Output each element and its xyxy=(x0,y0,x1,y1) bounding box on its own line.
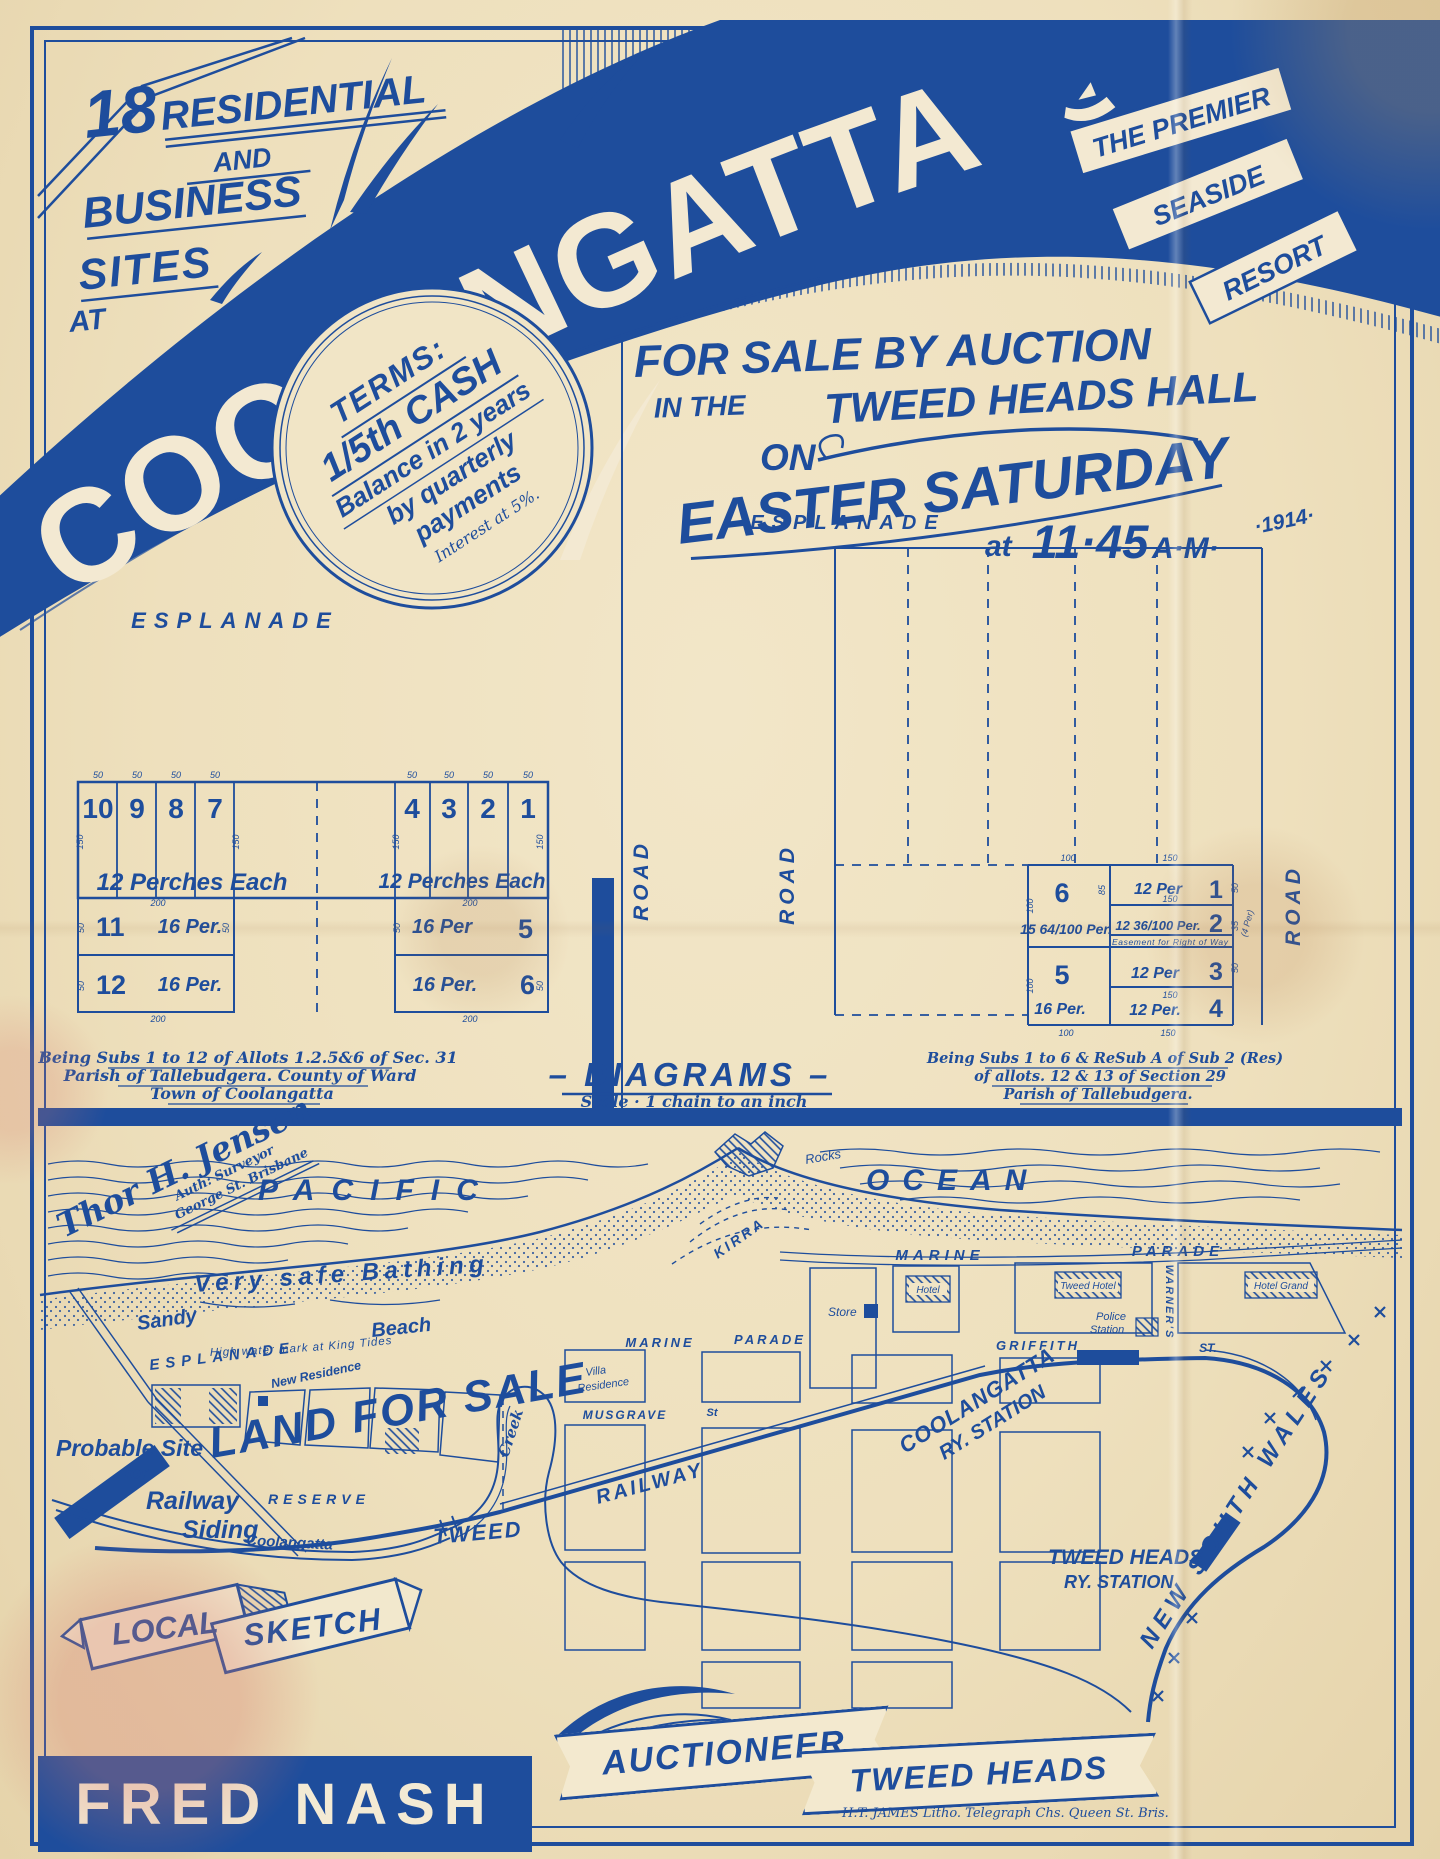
lot-number: 1 xyxy=(520,793,536,824)
marine-parade-label2: MARINE xyxy=(625,1335,694,1350)
lot-number: 7 xyxy=(207,793,223,824)
diagrams-scale: Scale · 1 chain to an inch xyxy=(581,1092,808,1111)
lot-number: 4 xyxy=(1209,995,1223,1023)
lot-number: 5 xyxy=(1054,960,1069,990)
police-station-building xyxy=(1136,1318,1158,1336)
dim-label: 100 xyxy=(1060,853,1075,863)
area-label: 16 Per. xyxy=(413,974,478,996)
griffith-st-suffix: ST. xyxy=(1199,1341,1217,1355)
tweed-hotel-label: Tweed Hotel xyxy=(1060,1281,1116,1292)
railway-label: RAILWAY xyxy=(594,1459,707,1509)
area-label: 16 Per. xyxy=(1034,1001,1086,1018)
dim-label: 50 xyxy=(171,770,181,780)
road-label: ROAD xyxy=(630,839,653,921)
buildings: Store Hotel Tweed Hotel Police Station H… xyxy=(828,1272,1317,1336)
left-caption: Being Subs 1 to 12 of Allots 1.2.5&6 of … xyxy=(37,1048,457,1104)
poster: COOLANGATTA 18 RESIDENTIAL AND BUSINESS … xyxy=(0,0,1440,1859)
tweed-heads-station-line2: RY. STATION xyxy=(1064,1572,1174,1592)
coolangatta-station-label: COOLANGATTA RY. STATION xyxy=(894,1342,1073,1480)
area-label: 12 Per. xyxy=(1129,1002,1181,1019)
police-station-label2: Station xyxy=(1090,1324,1124,1336)
right-caption: Being Subs 1 to 6 & ReSub A of Sub 2 (Re… xyxy=(926,1050,1283,1104)
dim-label: 50 xyxy=(483,770,493,780)
sites-at: AT xyxy=(66,303,109,339)
right-esplanade-label: ESPLANADE xyxy=(750,512,945,534)
probable-site-label3: Railway xyxy=(146,1487,240,1515)
marine-parade-label: PARADE xyxy=(1132,1243,1224,1260)
lot-number: 6 xyxy=(1054,878,1069,908)
dim-label: 50 xyxy=(535,981,545,991)
lot-number: 12 xyxy=(96,970,126,1000)
easement-label: Easement for Right of Way xyxy=(1112,937,1229,947)
lot-number: 4 xyxy=(404,793,420,824)
road-label: ROAD xyxy=(1282,864,1305,946)
dim-label: 200 xyxy=(149,898,165,908)
marine-parade-label2: PARADE xyxy=(734,1332,806,1347)
caption-line: Parish of Tallebudgera. County of Ward xyxy=(63,1066,417,1085)
auctioneer-name-bar: FRED NASH xyxy=(38,1756,532,1852)
dim-label: 150 xyxy=(391,834,401,849)
auction-line3: ON xyxy=(760,437,817,478)
reserve-label: RESERVE xyxy=(268,1491,370,1507)
caption-line: Being Subs 1 to 12 of Allots 1.2.5&6 of … xyxy=(37,1048,457,1067)
kirra-label: KIRRA xyxy=(710,1214,768,1261)
dim-label: 85 xyxy=(1097,884,1107,895)
dim-label: 50 xyxy=(76,981,86,991)
dim-label: 150 xyxy=(231,834,241,849)
store-building xyxy=(864,1304,878,1318)
lot-number: 6 xyxy=(520,970,535,1000)
local-sketch-ribbon: LOCAL SKETCH xyxy=(58,1562,428,1691)
dim-label: 50 xyxy=(1230,883,1240,893)
dim-label: 50 xyxy=(523,770,533,780)
musgrave-st-suffix: St xyxy=(707,1407,719,1419)
dim-label: 200 xyxy=(461,1014,477,1024)
dim-label: 50 xyxy=(444,770,454,780)
area-label: 12 Perches Each xyxy=(97,869,288,896)
dim-label: 50 xyxy=(1230,963,1240,973)
diagrams-title: – DIAGRAMS – xyxy=(549,1056,832,1093)
sites-sites: SITES xyxy=(76,238,215,300)
dim-label: 150 xyxy=(75,834,85,849)
area-label: 16 Per. xyxy=(158,916,223,938)
lot-number: 5 xyxy=(518,914,533,944)
dim-label: 150 xyxy=(1162,894,1177,904)
lot-number: 2 xyxy=(480,793,496,824)
road-label: ROAD xyxy=(776,843,799,925)
left-esplanade-label: ESPLANADE xyxy=(131,608,339,633)
rocks-label: Rocks xyxy=(804,1146,843,1167)
probable-site-label1: Probable Site xyxy=(56,1435,203,1461)
place-label: TWEED HEADS xyxy=(849,1749,1109,1799)
caption-line: Town of Coolangatta xyxy=(150,1084,334,1103)
caption-line: Being Subs 1 to 6 & ReSub A of Sub 2 (Re… xyxy=(926,1050,1283,1067)
dim-label: 50 xyxy=(407,770,417,780)
musgrave-st-label: MUSGRAVE xyxy=(583,1408,667,1422)
dim-label: 150 xyxy=(1162,990,1177,1000)
dim-label: 100 xyxy=(1058,1028,1073,1038)
warners-st-label: WARNER'S xyxy=(1163,1265,1175,1340)
lot-number: 1 xyxy=(1209,876,1223,904)
diagrams-section: ESPLANADE 10 9 8 7 4 3 2 1 50 50 50 50 5… xyxy=(0,500,1440,1130)
hotel-grand-label: Hotel Grand xyxy=(1254,1281,1308,1292)
easement-note: (4 Per) xyxy=(1239,909,1256,938)
tweed-river-label: TWEED xyxy=(432,1516,523,1549)
marine-parade-label: MARINE xyxy=(895,1247,984,1264)
dim-label: 50 xyxy=(76,923,86,933)
villa-residence-label: Villa xyxy=(585,1364,607,1379)
new-residence-label: New Residence xyxy=(270,1358,363,1391)
hotel-label: Hotel xyxy=(916,1285,940,1296)
pacific-label: PACIFIC xyxy=(258,1174,495,1207)
dim-label: 150 xyxy=(1160,1028,1175,1038)
dim-label: 50 xyxy=(392,923,402,933)
lot-number: 3 xyxy=(1209,958,1223,986)
dim-label: 35 xyxy=(1230,920,1240,931)
dim-label: 50 xyxy=(132,770,142,780)
dim-label: 100 xyxy=(1025,898,1035,913)
probable-site-label2: for xyxy=(124,1463,149,1483)
litho-credit: H.T. JAMES Litho. Telegraph Chs. Queen S… xyxy=(842,1806,1262,1821)
auctioneer-name: FRED NASH xyxy=(75,1771,494,1838)
auction-line2a: IN THE xyxy=(653,389,747,423)
ocean-label: OCEAN xyxy=(866,1164,1039,1197)
lot-number: 9 xyxy=(129,793,145,824)
dim-label: 200 xyxy=(461,898,477,908)
area-label: 16 Per. xyxy=(158,974,223,996)
dim-label: 50 xyxy=(221,923,231,933)
area-label: 12 Per xyxy=(1131,965,1180,982)
area-label: 12 Perches Each xyxy=(379,870,546,893)
sites-18: 18 xyxy=(80,71,161,152)
tweed-heads-station-line1: TWEED HEADS xyxy=(1048,1546,1203,1569)
dim-label: 50 xyxy=(93,770,103,780)
lot-number: 11 xyxy=(96,912,125,942)
police-station-label1: Police xyxy=(1096,1311,1126,1323)
left-diagram: 10 9 8 7 4 3 2 1 50 50 50 50 50 50 50 50… xyxy=(75,770,548,1024)
caption-line: of allots. 12 & 13 of Section 29 xyxy=(974,1068,1226,1085)
lot-number: 2 xyxy=(1209,910,1223,938)
border-x-marks xyxy=(1153,1307,1385,1701)
store-label: Store xyxy=(828,1305,857,1319)
dim-label: 50 xyxy=(210,770,220,780)
right-diagram: 6 15 64/100 Per. 12 Per 1 12 36/100 Per.… xyxy=(835,548,1262,1038)
lot-number: 8 xyxy=(168,793,184,824)
dim-label: 100 xyxy=(1025,978,1035,993)
area-label: 15 64/100 Per. xyxy=(1020,921,1112,937)
dim-label: 150 xyxy=(1162,853,1177,863)
lot-number: 10 xyxy=(82,793,113,824)
dim-label: 150 xyxy=(535,834,545,849)
coolangatta-station-platform xyxy=(1077,1350,1139,1365)
area-label: 16 Per xyxy=(412,916,473,938)
dim-label: 200 xyxy=(149,1014,165,1024)
lot-number: 3 xyxy=(441,793,457,824)
caption-line: Parish of Tallebudgera. xyxy=(1002,1086,1192,1103)
area-label: 12 36/100 Per. xyxy=(1115,918,1200,933)
map-esplanade-label: ESPLANADE xyxy=(148,1339,295,1374)
